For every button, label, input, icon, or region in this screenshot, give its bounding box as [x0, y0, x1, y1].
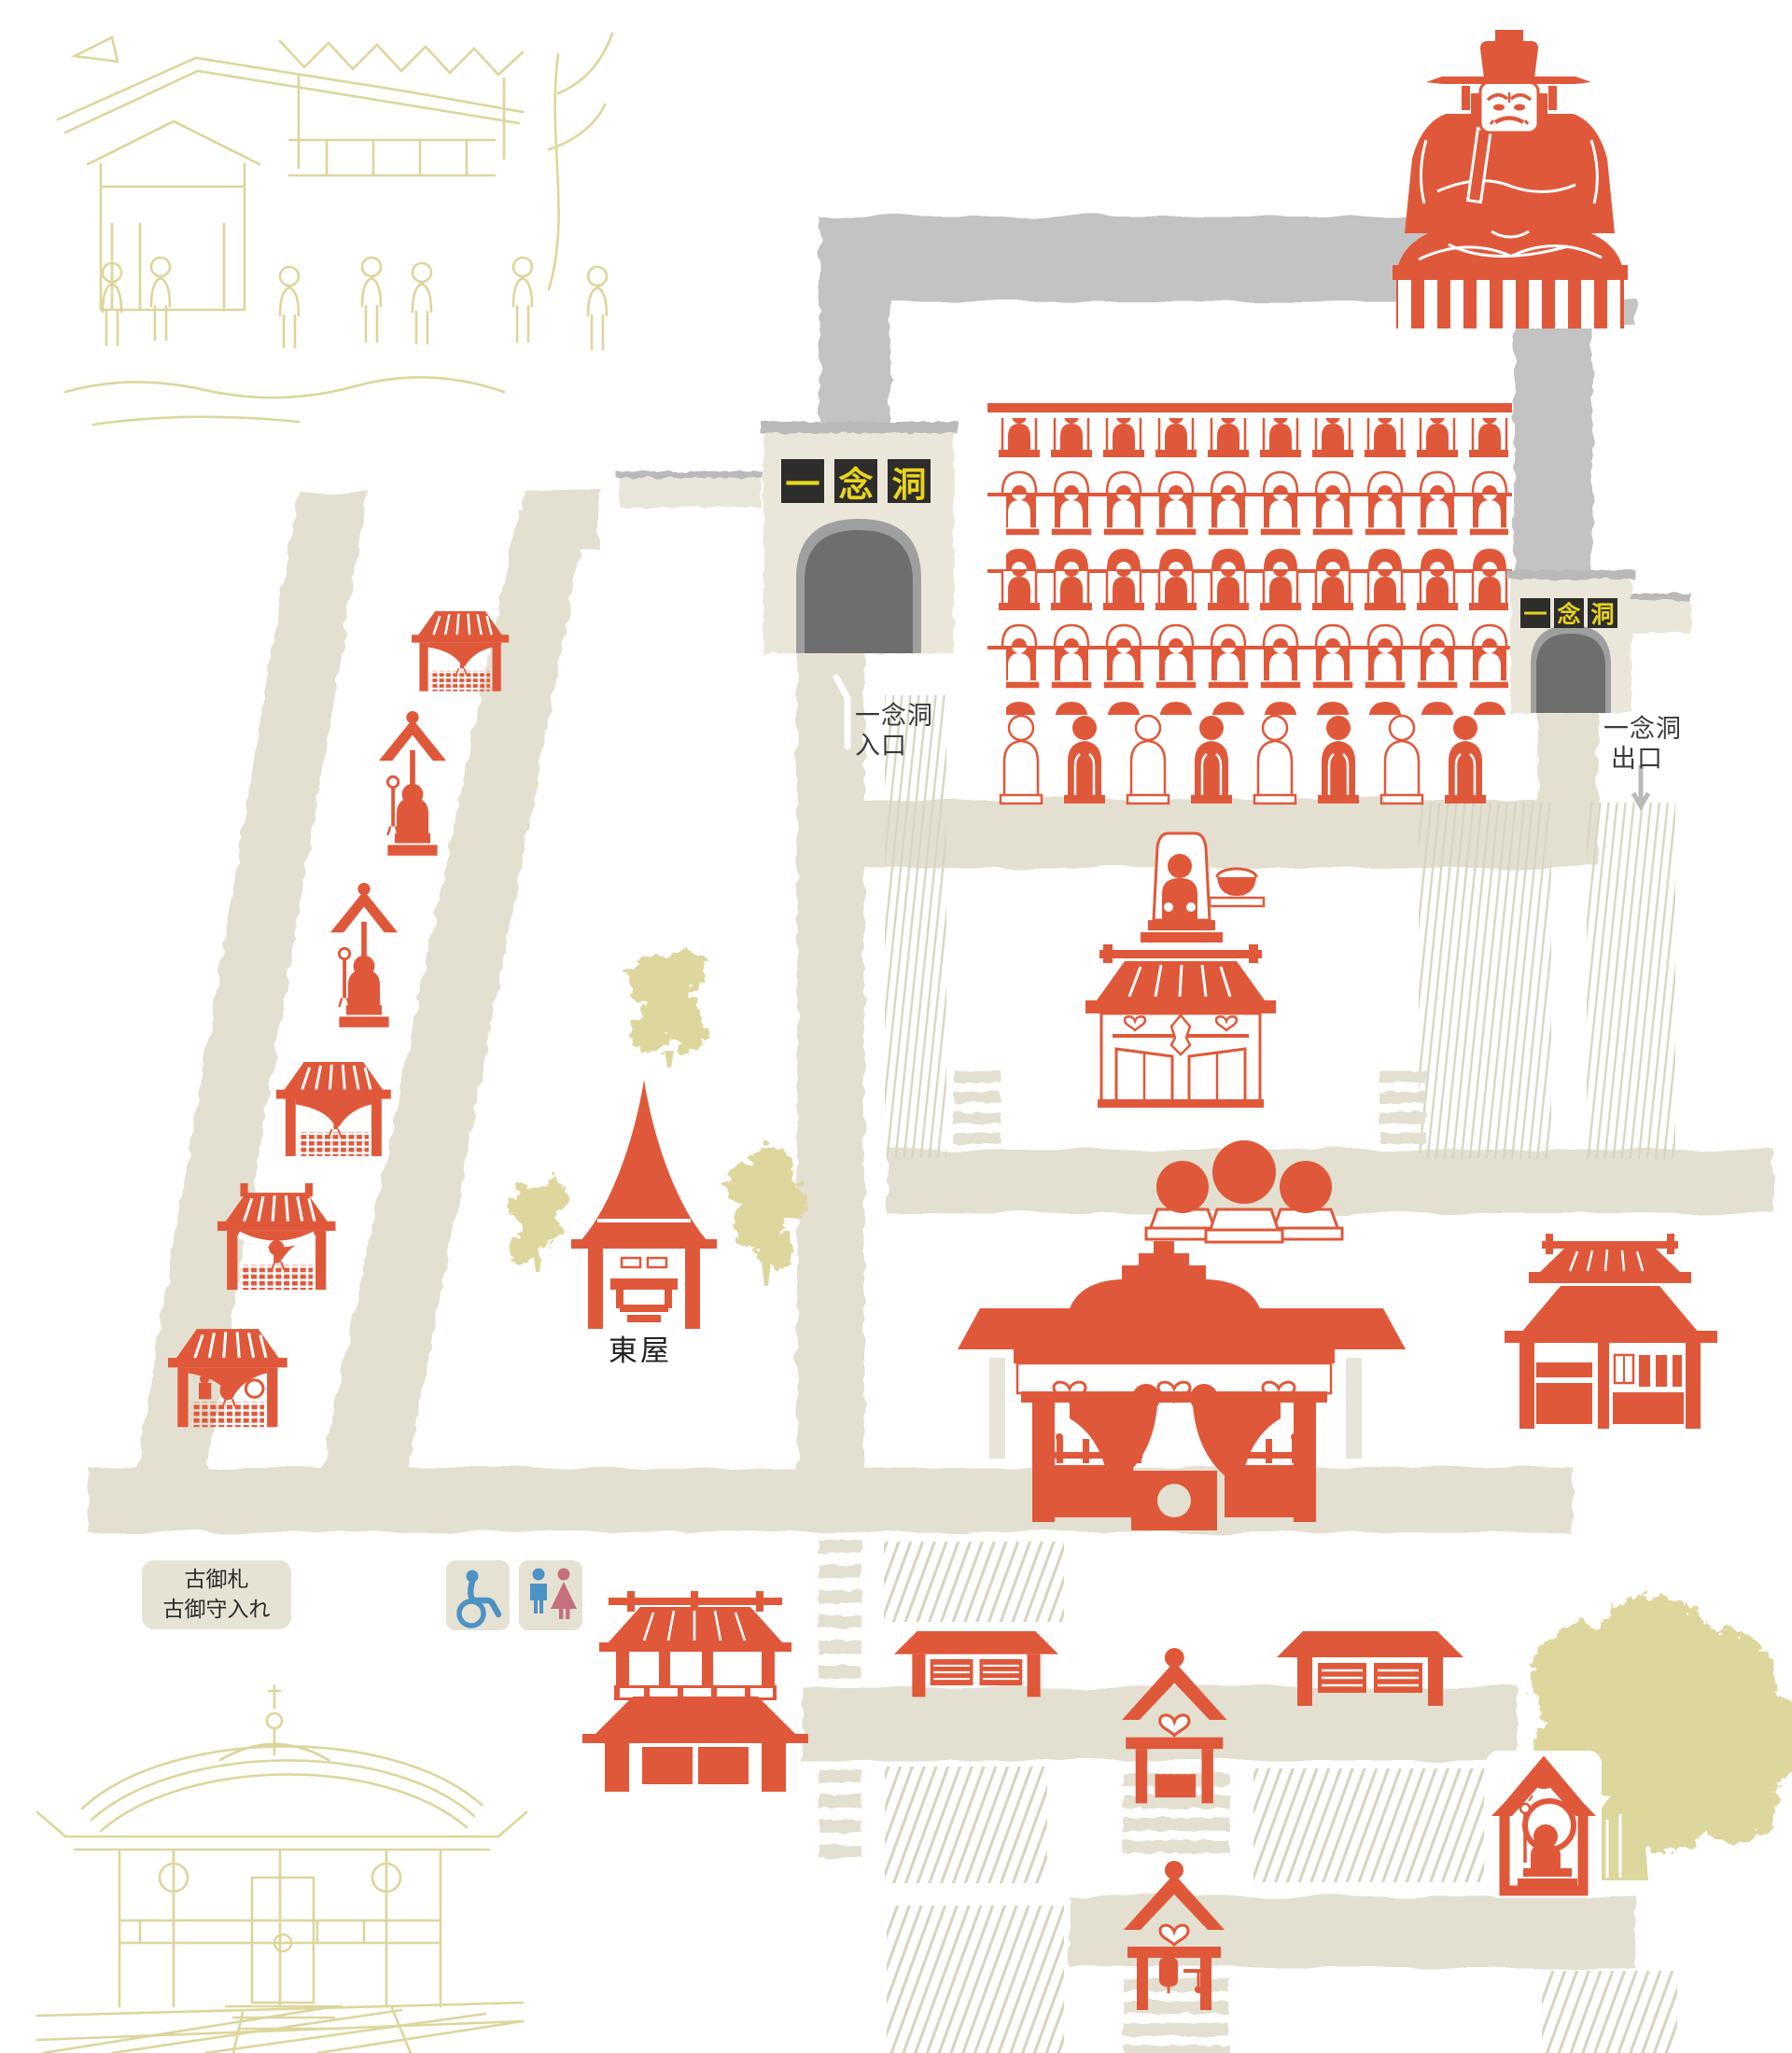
sketch-people	[103, 258, 607, 349]
old-talisman-line2: 古御守入れ	[163, 1595, 271, 1625]
jizo-statue-1	[379, 711, 446, 856]
cave-exit-label: 一念洞 出口	[1603, 715, 1682, 775]
temple-grounds-map: 一 念 洞 一 念 洞 一念洞 入口 一念洞 出口 東屋 古御札 古御守入れ	[0, 0, 1792, 2053]
office-building	[1505, 1234, 1717, 1429]
courtyard-shrine	[1085, 833, 1276, 1108]
cave-entrance-sign-char-1: 一	[781, 459, 824, 503]
cave-exit-sign-char-2: 念	[1554, 598, 1584, 628]
restroom-icon	[519, 1560, 582, 1630]
enma-statue	[1393, 30, 1628, 328]
cave-exit-label-line1: 一念洞	[1603, 715, 1682, 745]
boundary-walls	[616, 471, 765, 508]
cave-exit	[1506, 570, 1691, 713]
rakan-statue-wall	[987, 403, 1512, 803]
cave-entrance-label: 一念洞 入口	[855, 702, 933, 761]
cave-exit-sign-char-3: 洞	[1588, 598, 1617, 628]
cave-entrance-label-line1: 一念洞	[855, 702, 933, 732]
cave-entrance-label-line2: 入口	[855, 732, 933, 761]
cave-entrance-sign-char-2: 念	[834, 459, 877, 503]
old-talisman-box: 古御札 古御守入れ	[142, 1560, 291, 1629]
front-row-statues	[1001, 716, 1486, 803]
two-story-building	[582, 1591, 808, 1792]
azumaya-label: 東屋	[609, 1327, 672, 1369]
map-artwork	[0, 0, 1792, 2053]
jizo-house-shrine	[1486, 1751, 1602, 1898]
wheelchair-icon	[446, 1560, 510, 1630]
rest-shelter-1	[894, 1631, 1058, 1697]
cave-entrance-sign-char-3: 洞	[888, 459, 931, 503]
small-shrine-1	[412, 611, 509, 691]
small-shrine-2	[276, 1062, 391, 1156]
cave-exit-label-line2: 出口	[1611, 745, 1682, 775]
temple-hall-sketch	[37, 1685, 526, 2053]
old-talisman-line1: 古御札	[185, 1565, 249, 1595]
railings	[1051, 1433, 1301, 1463]
jizo-statue-2	[330, 883, 398, 1027]
temple-street-sketch	[58, 34, 612, 425]
azumaya-gazebo	[571, 1080, 717, 1329]
cave-exit-sign-char-1: 一	[1520, 598, 1550, 628]
